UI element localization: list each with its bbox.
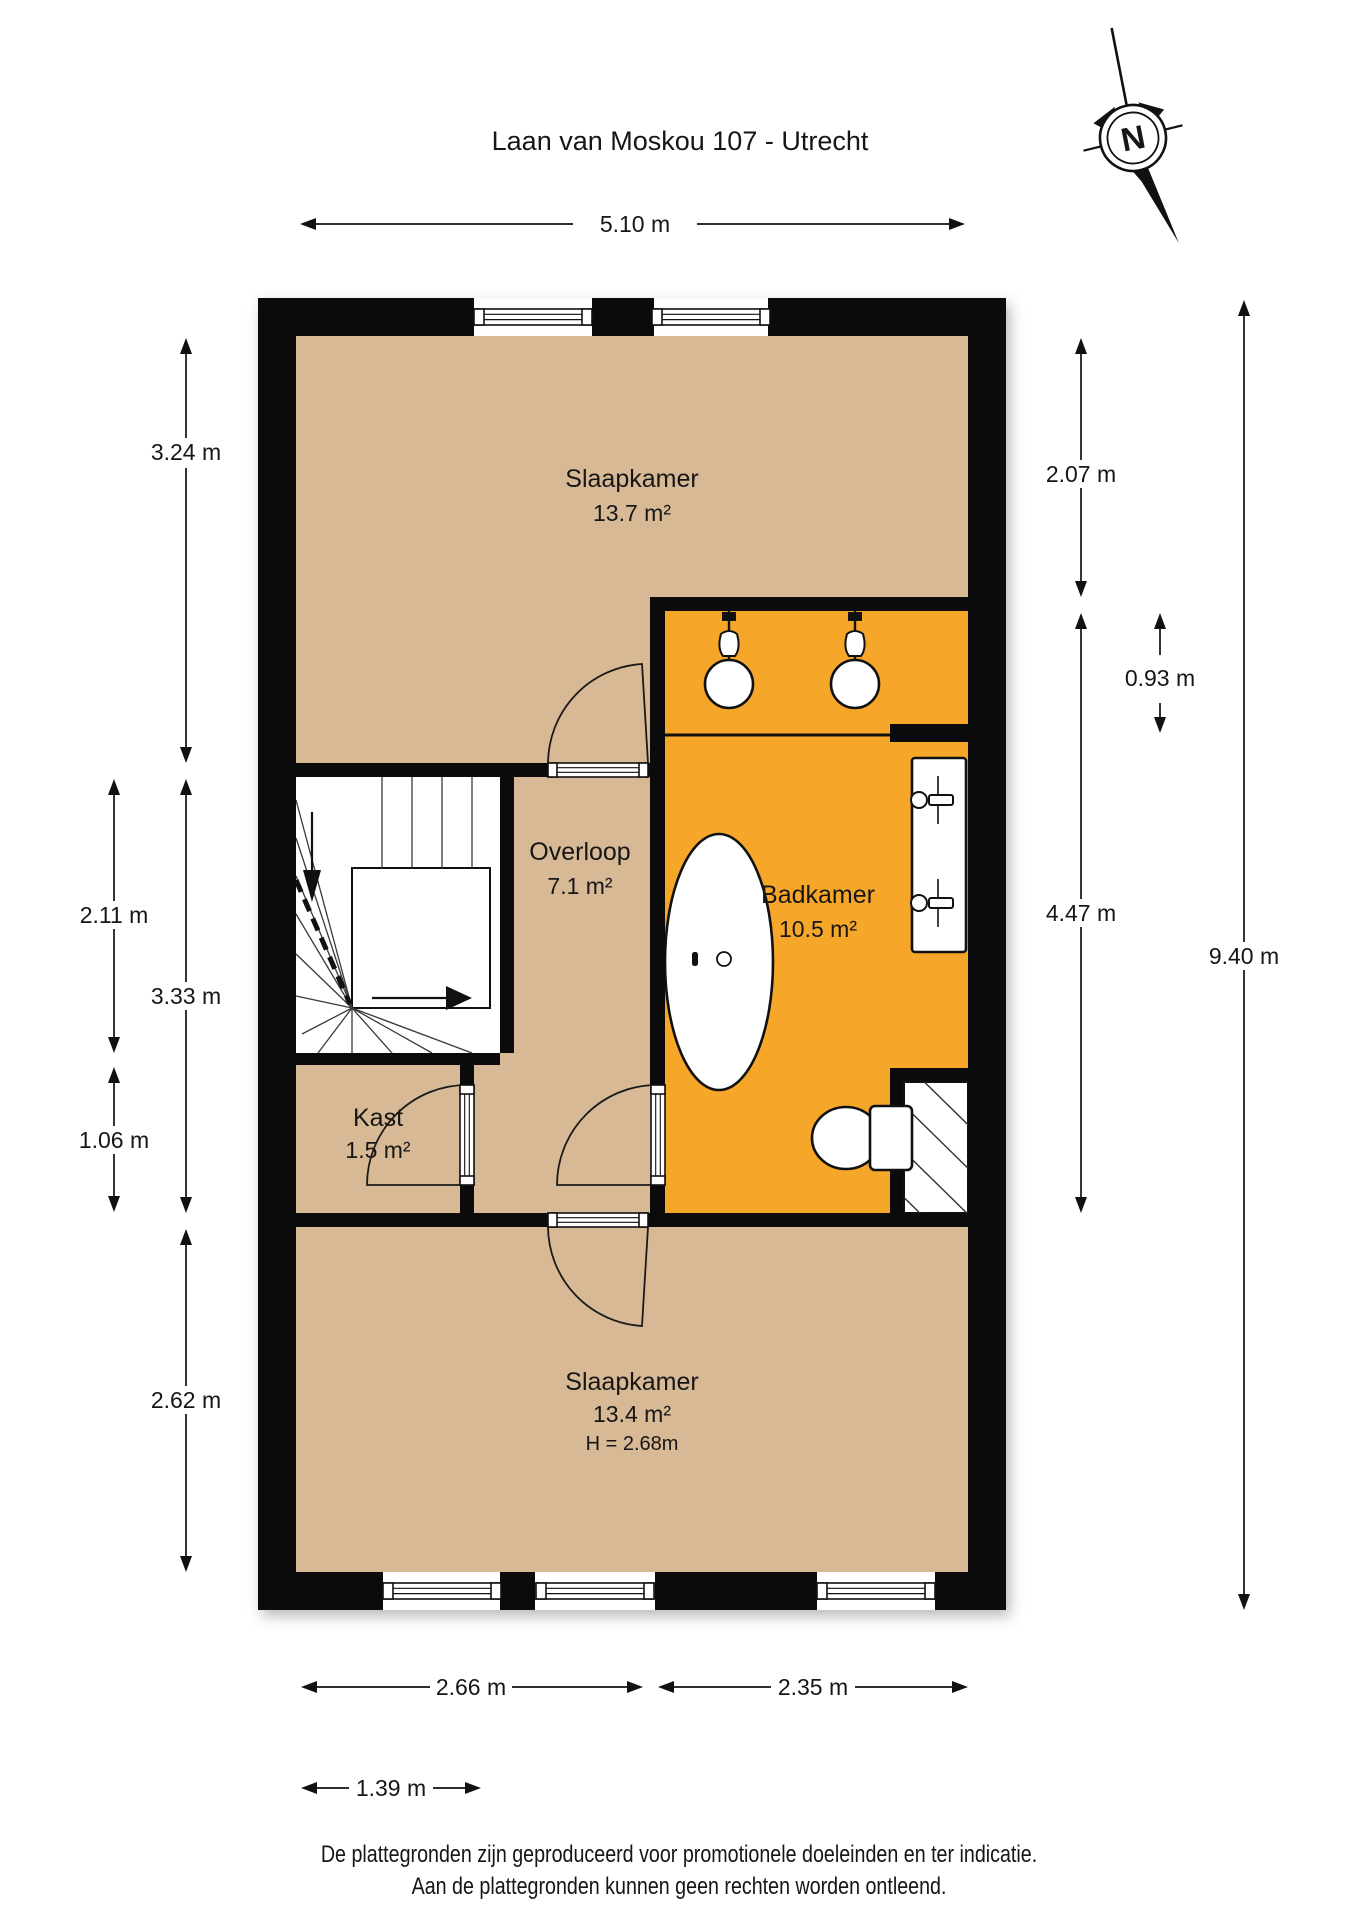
compass-north-icon: N <box>1062 18 1205 257</box>
wall-outer-right <box>968 298 1006 1610</box>
dim-right-slaapkamer1: 2.07 m <box>1046 461 1116 487</box>
dim-top-width: 5.10 m <box>600 211 670 237</box>
room-area-badkamer: 10.5 m² <box>779 916 857 942</box>
dim-right-shower: 0.93 m <box>1125 665 1195 691</box>
room-area-slaapkamer1: 13.7 m² <box>593 500 671 526</box>
floorplan-canvas: Laan van Moskou 107 - Utrecht N <box>0 0 1358 1920</box>
floorplan-page: Laan van Moskou 107 - Utrecht N <box>0 0 1358 1920</box>
toilet <box>812 1106 912 1170</box>
room-label-kast: Kast <box>353 1104 403 1132</box>
floor-slaapkamer2 <box>296 1227 968 1572</box>
window-icon <box>652 309 770 325</box>
room-area-overloop: 7.1 m² <box>547 873 613 899</box>
door-icon <box>548 763 648 777</box>
room-height-slaapkamer2: H = 2.68m <box>586 1433 679 1455</box>
dim-left-kast: 1.06 m <box>79 1127 149 1153</box>
dim-left-overloop: 3.33 m <box>151 983 221 1009</box>
door-icon <box>651 1085 665 1185</box>
footer-line-1: De plattegronden zijn geproduceerd voor … <box>321 1840 1037 1867</box>
room-label-slaapkamer1: Slaapkamer <box>565 465 698 493</box>
window-icon <box>536 1583 654 1599</box>
door-icon <box>548 1213 648 1227</box>
bathtub <box>665 834 773 1090</box>
dim-left-slaapkamer1: 3.24 m <box>151 439 221 465</box>
room-label-slaapkamer2: Slaapkamer <box>565 1368 698 1396</box>
wall-outer-left <box>258 298 296 1610</box>
footer-line-2: Aan de plattegronden kunnen geen rechten… <box>412 1872 947 1899</box>
window-icon <box>383 1583 501 1599</box>
room-label-overloop: Overloop <box>529 838 630 866</box>
room-area-kast: 1.5 m² <box>345 1137 411 1163</box>
room-label-badkamer: Badkamer <box>761 881 875 909</box>
page-title: Laan van Moskou 107 - Utrecht <box>492 126 869 156</box>
window-icon <box>474 309 592 325</box>
dim-right-badkamer: 4.47 m <box>1046 900 1116 926</box>
dim-right-total: 9.40 m <box>1209 943 1279 969</box>
dim-bottom-left: 2.66 m <box>436 1674 506 1700</box>
dim-left-stairs: 2.11 m <box>80 902 149 928</box>
window-icon <box>817 1583 935 1599</box>
footer-disclaimer: De plattegronden zijn geproduceerd voor … <box>321 1840 1037 1899</box>
vanity-washbasin <box>911 758 966 952</box>
wall-outer-top <box>258 298 1006 336</box>
dim-bottom-right: 2.35 m <box>778 1674 848 1700</box>
dim-left-slaapkamer2: 2.62 m <box>151 1387 221 1413</box>
door-icon <box>460 1085 474 1185</box>
dim-bottom-entry: 1.39 m <box>356 1775 426 1801</box>
room-area-slaapkamer2: 13.4 m² <box>593 1401 671 1427</box>
